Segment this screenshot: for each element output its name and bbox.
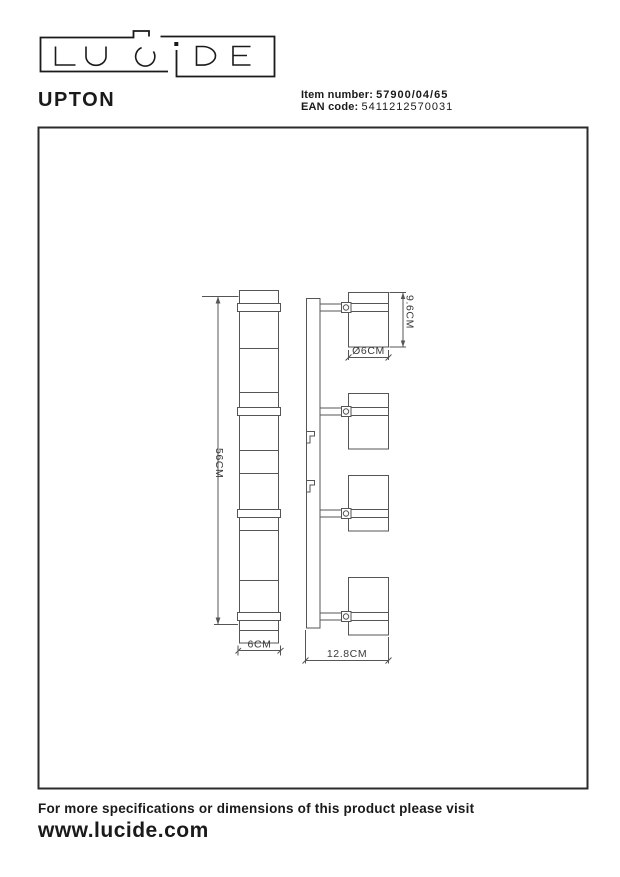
logo-letter-c [136, 48, 155, 66]
logo-letter-u [86, 47, 106, 66]
lucide-logo [41, 31, 275, 77]
ean-row: EAN code: 5411212570031 [301, 102, 453, 114]
mounting-bar [307, 299, 321, 629]
footer-website: www.lucide.com [38, 819, 474, 843]
spot-head-1 [349, 293, 389, 348]
spot-head-2 [349, 394, 389, 450]
spot-head-4 [349, 578, 389, 636]
logo-letter-d [197, 47, 216, 66]
item-number-label: Item number: [301, 89, 373, 101]
dim-label-bar-width: 6CM [248, 639, 272, 651]
side-view [307, 293, 389, 636]
spot-ring-4 [238, 613, 281, 621]
dim-label-spot-height: 9.6CM [404, 295, 416, 329]
sheet-graphics: 56CM 9.6CM Ø6CM 6CM 12.8CM [0, 0, 620, 877]
dim-label-bar-length: 56CM [213, 448, 225, 478]
dim-bar-width: 6CM [236, 639, 284, 656]
spec-sheet-page: 56CM 9.6CM Ø6CM 6CM 12.8CM [0, 0, 620, 877]
ean-value: 5411212570031 [361, 101, 453, 113]
dimension-drawing: 56CM 9.6CM Ø6CM 6CM 12.8CM [202, 291, 416, 664]
dim-label-total-depth: 12.8CM [327, 648, 367, 660]
footer-note: For more specifications or dimensions of… [38, 800, 474, 817]
footer: For more specifications or dimensions of… [38, 800, 474, 843]
logo-letter-e [233, 47, 251, 66]
dim-spot-diameter: Ø6CM [346, 345, 392, 361]
product-name: UPTON [38, 89, 115, 112]
drawing-frame-border [39, 128, 588, 789]
dim-spot-height: 9.6CM [390, 293, 416, 348]
logo-letter-i-dot [174, 42, 178, 46]
item-info-block: Item number: 57900/04/65 EAN code: 54112… [301, 90, 453, 113]
front-view [238, 291, 281, 644]
dim-bar-length: 56CM [202, 297, 239, 625]
mount-clip-2 [307, 481, 315, 493]
spot-ring-3 [238, 510, 281, 518]
dim-label-spot-diameter: Ø6CM [352, 345, 385, 357]
spot-head-3 [349, 476, 389, 532]
spot-ring-1 [238, 304, 281, 312]
spot-ring-2 [238, 408, 281, 416]
logo-letter-l [56, 47, 76, 66]
ean-label: EAN code: [301, 101, 358, 113]
mount-clip-1 [307, 432, 315, 444]
item-number-value: 57900/04/65 [376, 89, 448, 101]
